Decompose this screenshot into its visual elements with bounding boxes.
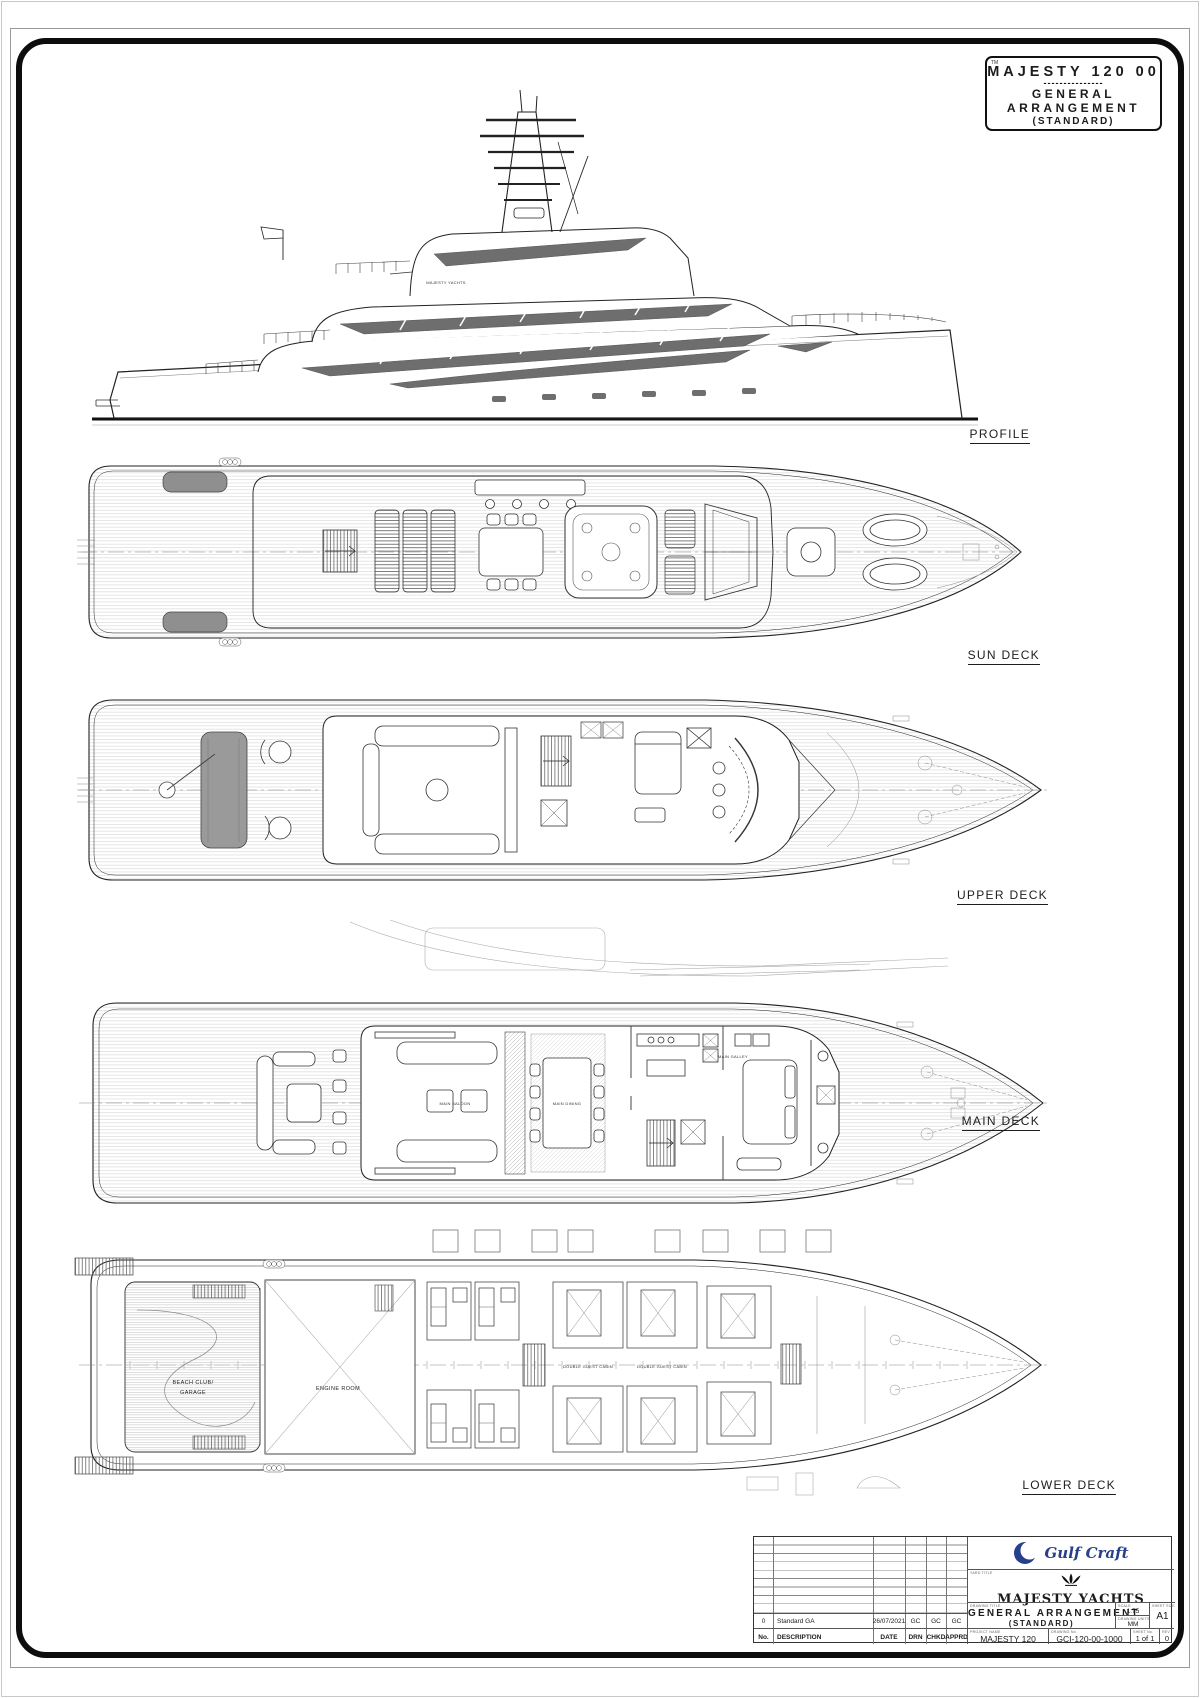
label-sun-deck: SUN DECK <box>968 648 1040 665</box>
project-name: MAJESTY 120 <box>968 1634 1048 1644</box>
main-deck-drawing: MAIN SALOON MAIN DINING MAIN GALLEY <box>75 1000 1050 1220</box>
label-main-deck: MAIN DECK <box>962 1114 1040 1131</box>
drawing-no: GCI-120-00-1000 <box>1049 1634 1130 1644</box>
rev-entry-chkd: GC <box>926 1614 946 1629</box>
upper-deck-drawing <box>75 688 1050 893</box>
trademark-mark: TM <box>991 60 998 66</box>
label-upper-deck: UPPER DECK <box>957 888 1048 905</box>
sun-sunpads <box>375 510 455 592</box>
drawing-title-label: DRAWING TITLE <box>970 1604 1001 1608</box>
revision-entry-row: 0 Standard GA 26/07/2021 GC GC GC <box>754 1613 967 1629</box>
majesty-crown-icon <box>1059 1573 1083 1586</box>
rev-entry-apprd: GC <box>946 1614 967 1629</box>
profile-mast <box>480 90 588 232</box>
drawing-sheet: TM MAJESTY 120 00 --------------- GENERA… <box>0 0 1200 1698</box>
yard-cell: YARD TITLE MAJESTY YACHTS <box>968 1569 1174 1603</box>
lower-engine-room <box>265 1280 415 1454</box>
rev-entry-date: 26/07/2021 <box>873 1614 905 1629</box>
sheet-no-label: SHEET No. <box>1133 1630 1153 1634</box>
divider-dashes: --------------- <box>987 80 1160 87</box>
scale-cell: SCALE 1:75 <box>1115 1602 1150 1616</box>
rev-label: REV <box>1162 1630 1170 1634</box>
title-block-right: Gulf Craft YARD TITLE MAJESTY YACHTS DRA… <box>967 1537 1174 1644</box>
label-profile: PROFILE <box>970 427 1030 444</box>
units-cell: DRAWING UNITS MM <box>1115 1615 1150 1629</box>
sun-deck-drawing <box>75 452 1025 652</box>
profile-waterline <box>92 419 978 425</box>
revision-header-row: No. DESCRIPTION DATE DRN CHKD APPRD <box>754 1628 967 1645</box>
rev-value: 0 <box>1160 1634 1174 1643</box>
gulf-craft-wordmark: Gulf Craft <box>1044 1544 1128 1562</box>
rev-header-no: No. <box>754 1629 773 1645</box>
title-line-3: (STANDARD) <box>987 115 1160 128</box>
room-label-beach-club-2: GARAGE <box>180 1390 206 1396</box>
profile-flag <box>261 227 283 260</box>
main-lobby-floor <box>505 1032 525 1174</box>
lower-deck-drawing: BEACH CLUB/ GARAGE ENGINE ROOM DOUBLE GU… <box>75 1252 1050 1500</box>
yard-title-label: YARD TITLE <box>970 1571 992 1575</box>
title-box: TM MAJESTY 120 00 --------------- GENERA… <box>985 56 1162 131</box>
title-block: 0 Standard GA 26/07/2021 GC GC GC No. DE… <box>753 1536 1172 1643</box>
profile-sundeck-house <box>390 228 694 296</box>
label-lower-deck: LOWER DECK <box>1022 1478 1116 1495</box>
room-label-engine-room: ENGINE ROOM <box>316 1386 360 1392</box>
room-label-main-saloon: MAIN SALOON <box>439 1101 470 1106</box>
profile-brand-text: MAJESTY YACHTS <box>426 280 466 285</box>
drawing-title: GENERAL ARRANGEMENT <box>968 1608 1115 1619</box>
rev-header-drn: DRN <box>905 1629 926 1645</box>
lower-beach-club <box>125 1282 260 1452</box>
rev-header-apprd: APPRD <box>946 1629 967 1645</box>
rev-header-chkd: CHKD <box>926 1629 946 1645</box>
drawing-no-cell: DRAWING No. GCI-120-00-1000 <box>1048 1628 1130 1644</box>
lower-below-hatches <box>747 1473 900 1495</box>
drawing-subtitle: (STANDARD) <box>968 1619 1115 1628</box>
rev-header-date: DATE <box>873 1629 905 1645</box>
rev-entry-drn: GC <box>905 1614 926 1629</box>
sheet-no: 1 of 1 <box>1131 1634 1159 1643</box>
room-label-main-dining: MAIN DINING <box>553 1101 581 1106</box>
drawing-title-cell: DRAWING TITLE GENERAL ARRANGEMENT (STAND… <box>968 1602 1115 1629</box>
sheet-no-cell: SHEET No. 1 of 1 <box>1130 1628 1159 1644</box>
gulf-craft-logo-icon <box>1013 1540 1039 1566</box>
size-label: SHEET SIZE <box>1152 1604 1175 1608</box>
rev-entry-no: 0 <box>754 1614 773 1629</box>
title-line-2: ARRANGEMENT <box>987 101 1160 115</box>
project-label: PROJECT NAME <box>970 1630 1001 1634</box>
room-label-beach-club-1: BEACH CLUB/ <box>172 1380 213 1386</box>
scale-value: 1:75 <box>1116 1608 1150 1615</box>
size-value: A1 <box>1150 1611 1175 1622</box>
project-cell: PROJECT NAME MAJESTY 120 <box>968 1628 1048 1644</box>
room-label-guest-cabin-fwd: DOUBLE GUEST CABIN <box>637 1364 687 1369</box>
overhang-lines <box>350 920 948 976</box>
main-deck-overhang <box>330 918 950 988</box>
rev-entry-description: Standard GA <box>774 1614 875 1629</box>
drawing-no-label: DRAWING No. <box>1051 1630 1077 1634</box>
rev-cell: REV 0 <box>1159 1628 1174 1644</box>
room-label-main-galley: MAIN GALLEY <box>718 1054 748 1059</box>
size-cell: SHEET SIZE A1 <box>1149 1602 1175 1629</box>
title-line-1: GENERAL <box>987 87 1160 101</box>
room-label-guest-cabin-aft: DOUBLE GUEST CABIN <box>563 1364 613 1369</box>
scale-label: SCALE <box>1118 1604 1131 1608</box>
rev-header-description: DESCRIPTION <box>774 1629 875 1645</box>
units-label: DRAWING UNITS <box>1118 1617 1150 1621</box>
sun-stair-well <box>323 530 357 572</box>
units-value: MM <box>1116 1621 1150 1628</box>
hatch-rects <box>433 1230 831 1252</box>
profile-drawing: MAJESTY YACHTS <box>90 82 980 437</box>
sun-jacuzzi <box>565 506 657 598</box>
gulf-craft-cell: Gulf Craft <box>968 1537 1174 1569</box>
revision-empty-rows <box>754 1537 967 1613</box>
